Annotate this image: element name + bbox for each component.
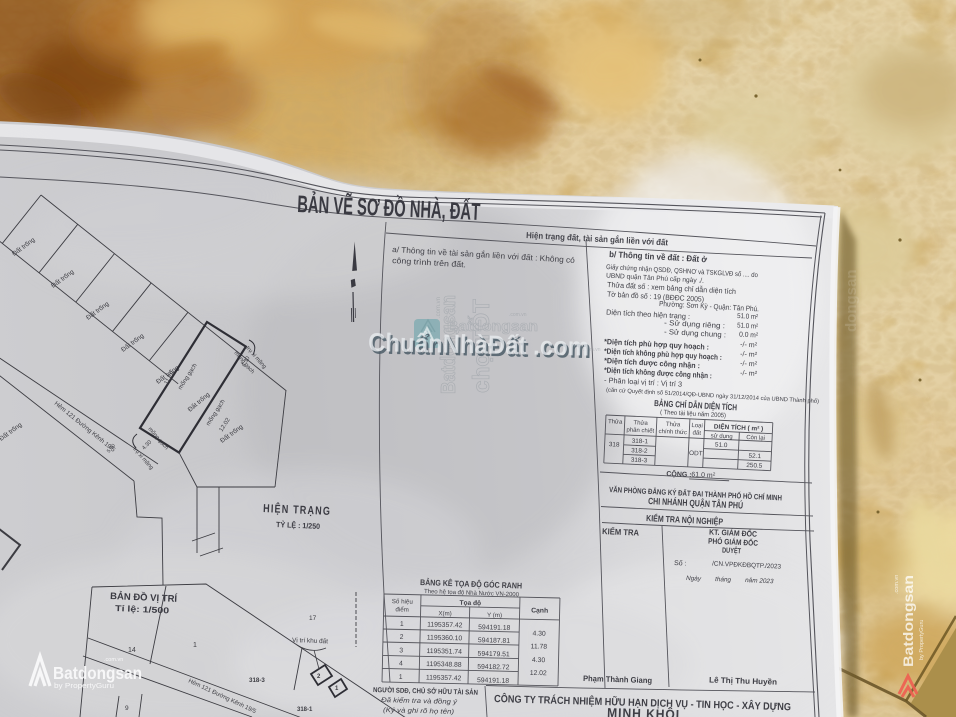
svg-text:1195351.74: 1195351.74 [426,648,462,656]
svg-text:9: 9 [125,705,129,712]
svg-text:594191.18: 594191.18 [478,624,510,632]
svg-text:Tọa độ: Tọa độ [459,600,481,607]
svg-text:Thửa: Thửa [633,419,648,427]
svg-text:1: 1 [399,674,403,681]
svg-text:ODT: ODT [689,450,703,458]
svg-text:sử dụng: sử dụng [710,432,732,440]
svg-text:2: 2 [400,634,404,641]
svg-text:dongsan: dongsan [843,270,860,333]
svg-text:TỶ LỆ : 1/250: TỶ LỆ : 1/250 [276,520,320,531]
svg-text:DUYỆT: DUYỆT [722,546,742,556]
svg-text:51.0: 51.0 [715,442,728,450]
svg-text:Còn lại: Còn lại [746,435,765,442]
svg-text:Thửa: Thửa [608,418,623,426]
svg-text:594179.51: 594179.51 [478,651,510,659]
svg-text:điểm: điểm [395,606,409,613]
svg-text:-/- m²: -/- m² [740,340,758,350]
svg-text:1195348.88: 1195348.88 [426,661,462,669]
svg-text:250.5: 250.5 [746,462,763,470]
svg-text:594182.72: 594182.72 [477,664,509,672]
svg-text:1195360.10: 1195360.10 [427,634,463,642]
svg-text:594191.18: 594191.18 [477,677,509,685]
svg-text:Số hiệu: Số hiệu [392,598,414,605]
svg-text:0.0 m²: 0.0 m² [739,330,759,340]
svg-text:318-2: 318-2 [631,447,648,455]
svg-text:4.30: 4.30 [532,630,546,637]
svg-text:52.1: 52.1 [748,453,761,461]
svg-text:51.0 m²: 51.0 m² [737,311,759,321]
svg-text:1: 1 [193,642,197,649]
svg-text:Batdongsan: Batdongsan [53,663,142,683]
svg-text:by PropertyGuru: by PropertyGuru [54,683,114,690]
svg-text:năm 2023: năm 2023 [745,577,774,585]
svg-text:.com.vn: .com.vn [509,312,527,318]
svg-text:1: 1 [400,621,404,628]
svg-text:Thửa: Thửa [666,421,681,429]
svg-text:1195357.42: 1195357.42 [427,621,463,629]
svg-text:11.78: 11.78 [531,643,548,650]
svg-text:318: 318 [609,441,620,449]
svg-text:by PropertyGuru: by PropertyGuru [919,620,925,660]
svg-text:1195357.42: 1195357.42 [426,674,462,682]
svg-text:318-1: 318-1 [297,707,313,713]
svg-text:Batdongsan: Batdongsan [901,575,916,667]
svg-text:318-3: 318-3 [249,677,265,684]
svg-text:tháng: tháng [715,576,732,584]
svg-text:-/- m²: -/- m² [740,349,758,359]
svg-text:17: 17 [309,615,317,622]
svg-text:-/- m²: -/- m² [740,359,758,369]
svg-text:4.30: 4.30 [532,657,546,664]
svg-text:Loại: Loại [691,423,703,430]
svg-text:318-3: 318-3 [631,457,648,465]
svg-text:X(m): X(m) [438,610,452,617]
svg-text:Y (m): Y (m) [487,612,502,619]
svg-text:3: 3 [399,647,403,654]
svg-text:12.02: 12.02 [530,670,547,677]
svg-text:594187.81: 594187.81 [478,637,510,645]
svg-text:318-1: 318-1 [631,438,648,446]
svg-text:KIỂM TRA: KIỂM TRA [602,525,639,538]
svg-text:14: 14 [128,647,136,654]
svg-text:MINH KHÔI: MINH KHÔI [607,705,680,717]
svg-text:.com.vn: .com.vn [894,575,900,594]
svg-text:4: 4 [399,660,403,667]
svg-text:-/- m²: -/- m² [740,368,758,378]
svg-text:Cạnh: Cạnh [531,607,548,614]
svg-text:.com.vn: .com.vn [436,297,442,318]
svg-text:.com.vn: .com.vn [104,657,123,663]
svg-text:đất: đất [692,431,701,437]
svg-text:ChuẩnNhàĐất .com: ChuẩnNhàĐất .com [368,327,590,362]
svg-text:Ngày: Ngày [686,575,702,583]
